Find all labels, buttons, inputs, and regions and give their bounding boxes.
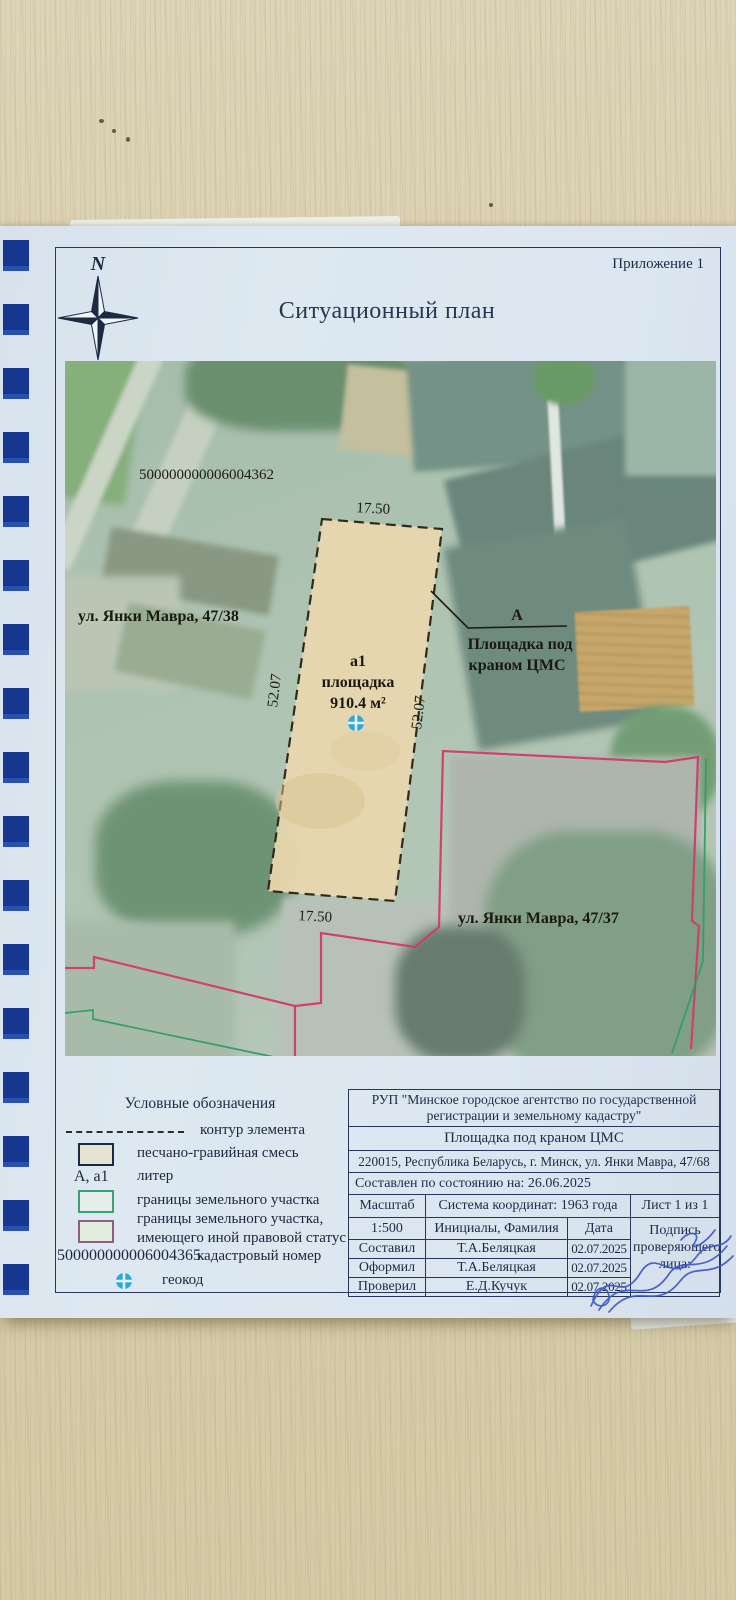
signature-cell-label: Подпись проверяющего лица: [631, 1218, 720, 1297]
legend-gravel-swatch [78, 1143, 114, 1166]
aerial-photo: 17.50 17.50 52.07 52.07 а1 площадка 910.… [65, 361, 716, 1056]
legend-bounds-other-line2: имеющего иной правовой статус [137, 1230, 346, 1246]
legend-bounds-other-line1: границы земельного участка, [137, 1211, 323, 1227]
photo-of-document: Приложение 1 Ситуационный план N S [0, 0, 736, 1600]
legend-bounds-label: границы земельного участка [137, 1192, 319, 1209]
document-sheet: Приложение 1 Ситуационный план N S [0, 226, 736, 1318]
title-block-table: РУП "Минское городское агентство по госу… [348, 1089, 720, 1297]
name-checked: Е.Д.Кучук [426, 1278, 568, 1297]
callout-line1: Площадка под [468, 636, 573, 653]
name-drafted: Т.А.Беляцкая [426, 1259, 568, 1278]
callout-letter: А [511, 607, 523, 624]
desk-speck [126, 137, 130, 142]
map-cadastral-number: 500000000006004362 [139, 467, 274, 483]
callout-line2: краном ЦМС [468, 657, 565, 674]
desk-speck [99, 119, 104, 123]
street-label-47-38: ул. Янки Мавра, 47/38 [78, 608, 239, 625]
role-drafted: Оформил [349, 1259, 426, 1278]
desk-speck [489, 203, 493, 207]
date-header: Дата [568, 1218, 631, 1240]
compiled-date: Составлен по состоянию на: 26.06.2025 [349, 1173, 720, 1195]
compass-star [58, 276, 138, 360]
appendix-label: Приложение 1 [480, 256, 704, 273]
desk-speck [112, 129, 116, 133]
role-compiled: Составил [349, 1240, 426, 1259]
legend-liter-key: А, а1 [74, 1168, 109, 1186]
dim-right: 52.07 [409, 694, 429, 730]
dim-bottom: 17.50 [298, 908, 333, 926]
legend-bounds-swatch [78, 1190, 114, 1213]
legend-cadastral-label: кадастровый номер [197, 1248, 321, 1265]
sheet-number: Лист 1 из 1 [631, 1195, 720, 1218]
scale-header: Масштаб [349, 1195, 426, 1218]
compass-north-label: N [90, 253, 107, 275]
coordinate-system: Система координат: 1963 года [426, 1195, 631, 1218]
org-name: РУП "Минское городское агентство по госу… [349, 1090, 720, 1127]
map-overlay: 17.50 17.50 52.07 52.07 а1 площадка 910.… [65, 361, 716, 1056]
scale-value: 1:500 [349, 1218, 426, 1240]
legend-cadastral-number: 500000000006004365 [57, 1247, 201, 1265]
binding-marks [3, 240, 29, 1302]
legend-gravel-label: песчано-гравийная смесь [137, 1145, 299, 1162]
date-compiled: 02.07.2025 [568, 1240, 631, 1259]
legend-liter-label: литер [137, 1168, 173, 1185]
initials-header: Инициалы, Фамилия [426, 1218, 568, 1240]
dim-left: 52.07 [265, 672, 285, 708]
legend-title: Условные обозначения [85, 1095, 315, 1113]
legend-dashed-line-swatch [66, 1131, 184, 1133]
geocode-marker [348, 715, 364, 731]
page-title: Ситуационный план [55, 298, 719, 325]
role-checked: Проверил [349, 1278, 426, 1297]
legend-geocode-icon [114, 1271, 134, 1291]
date-checked: 02.07.2025 [568, 1278, 631, 1297]
callout-a: А Площадка под краном ЦМС [431, 591, 572, 674]
street-label-47-37: ул. Янки Мавра, 47/37 [458, 910, 619, 927]
dim-top: 17.50 [356, 500, 391, 518]
date-drafted: 02.07.2025 [568, 1259, 631, 1278]
legend-bounds-other-swatch [78, 1220, 114, 1243]
name-compiled: Т.А.Беляцкая [426, 1240, 568, 1259]
parcel-area: 910.4 м² [330, 695, 386, 712]
object-address: 220015, Республика Беларусь, г. Минск, у… [349, 1151, 720, 1173]
legend-bounds-other-label: границы земельного участка, имеющего ино… [137, 1210, 346, 1248]
parcel-kind: площадка [322, 674, 395, 691]
legend-geocode-label: геокод [162, 1272, 203, 1289]
legend-contour-label: контур элемента [200, 1122, 305, 1139]
object-name: Площадка под краном ЦМС [349, 1127, 720, 1151]
parcel-letter: а1 [350, 653, 366, 670]
